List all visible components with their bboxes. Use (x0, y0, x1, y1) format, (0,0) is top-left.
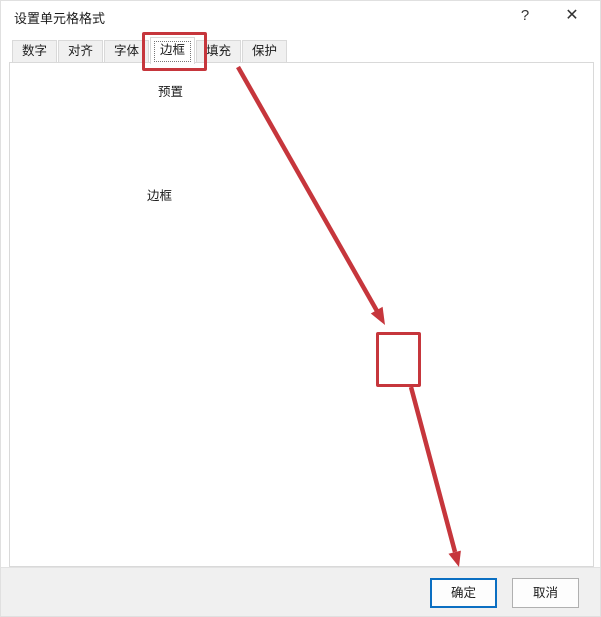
title-bar: 设置单元格格式 ? ✕ (1, 1, 600, 31)
close-icon[interactable]: ✕ (557, 4, 587, 28)
tab-number[interactable]: 数字 (12, 40, 57, 63)
tab-protection[interactable]: 保护 (242, 40, 287, 63)
format-cells-dialog: 设置单元格格式 ? ✕ 数字 对齐 字体 边框 填充 保护 直线 样式(S): … (0, 0, 601, 617)
help-icon[interactable]: ? (510, 4, 540, 28)
dialog-title: 设置单元格格式 (14, 8, 105, 27)
tab-border[interactable]: 边框 (150, 37, 195, 64)
presets-title: 预置 (158, 81, 183, 100)
cancel-button[interactable]: 取消 (512, 578, 579, 608)
footer (1, 567, 600, 617)
border-title: 边框 (147, 185, 172, 204)
tab-font[interactable]: 字体 (104, 40, 149, 63)
tab-fill[interactable]: 填充 (196, 40, 241, 63)
tab-page-border (9, 62, 594, 567)
ok-button[interactable]: 确定 (430, 578, 497, 608)
tab-alignment[interactable]: 对齐 (58, 40, 103, 63)
